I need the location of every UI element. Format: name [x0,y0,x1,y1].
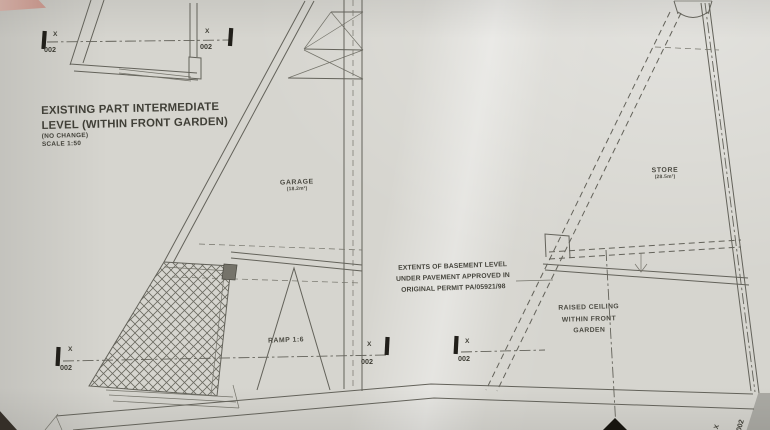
garage-room-label: GARAGE (18.2m²) [262,178,332,193]
right-plan-store [486,1,759,430]
basement-extents-annotation: EXTENTS OF BASEMENT LEVEL UNDER PAVEMENT… [390,259,515,296]
drawing-title-block: EXISTING PART INTERMEDIATE LEVEL (WITHIN… [41,100,229,149]
annotation-leader [516,280,553,281]
column [222,264,237,280]
hatched-wall-area [89,262,231,396]
section-sheet: 002 [458,354,470,363]
raised-ceiling-label: RAISED CEILING WITHIN FRONT GARDEN [543,301,636,338]
section-sheet: 002 [44,45,56,54]
centerline [606,250,616,428]
section-letter: X [53,31,57,38]
down-arrow-icon [635,253,647,272]
section-marker-bar [385,337,390,355]
stair-detail [288,12,363,79]
direction-arrowhead-icon [603,418,627,430]
photo-of-architectural-plan: EXISTING PART INTERMEDIATE LEVEL (WITHIN… [0,0,770,430]
store-room-label: STORE (28.5m²) [630,166,700,180]
section-sheet: 002 [200,42,212,51]
section-marker-bar [454,336,459,354]
section-marker-bar [228,28,233,46]
section-letter: X [465,338,469,345]
section-sheet: 002 [361,357,373,366]
section-letter: X [205,28,209,35]
ramp-door-swing [257,268,330,390]
ramp-label: RAMP 1:6 [268,336,304,344]
section-letter: X [68,346,72,353]
plan-linework [0,0,770,430]
raised-ceiling-beam [543,264,749,285]
upper-level-fragment [70,0,201,81]
left-plan-garage [89,0,363,408]
pier [545,234,570,258]
section-sheet: 002 [60,363,72,372]
beam [231,252,362,271]
section-letter: X [367,341,371,348]
